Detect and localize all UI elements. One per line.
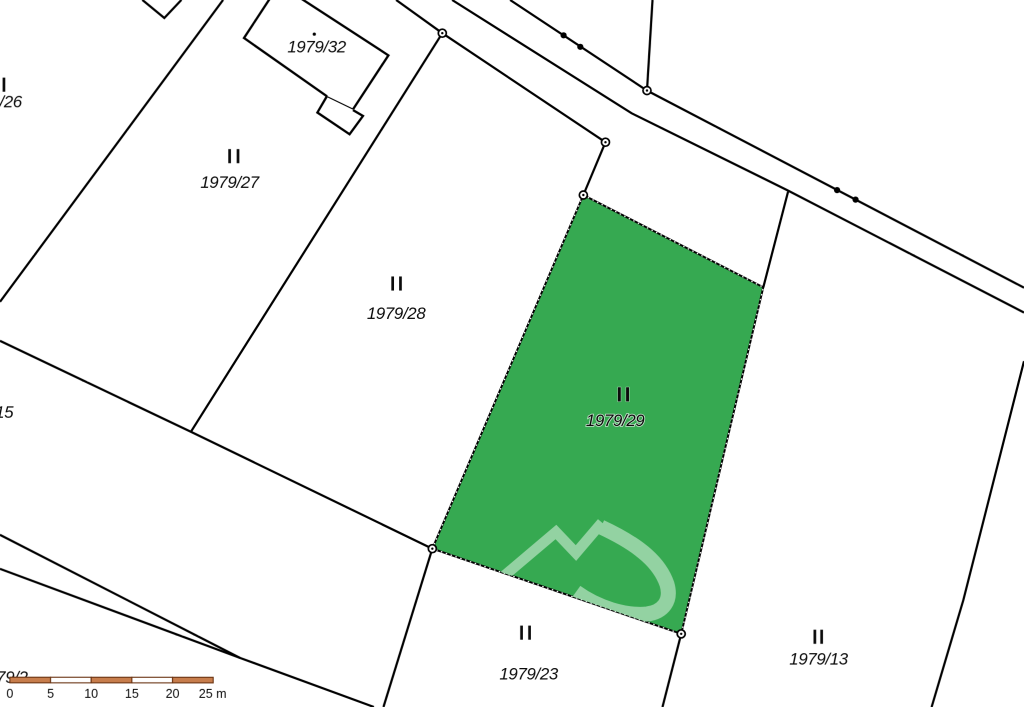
svg-text:1979/26: 1979/26 — [0, 92, 23, 111]
svg-text:1979/15: 1979/15 — [0, 403, 14, 422]
svg-text:1979/27: 1979/27 — [200, 173, 260, 192]
svg-text:20: 20 — [166, 687, 180, 701]
svg-text:1979/13: 1979/13 — [789, 650, 849, 669]
svg-text:15: 15 — [125, 687, 139, 701]
svg-text:1979/29: 1979/29 — [586, 411, 645, 430]
svg-text:5: 5 — [47, 687, 54, 701]
svg-text:1979/23: 1979/23 — [499, 664, 559, 683]
svg-text:0: 0 — [6, 687, 13, 701]
svg-text:1979/28: 1979/28 — [367, 304, 427, 323]
svg-text:10: 10 — [84, 687, 98, 701]
svg-text:25 m: 25 m — [199, 687, 227, 701]
svg-text:1979/32: 1979/32 — [287, 37, 347, 56]
